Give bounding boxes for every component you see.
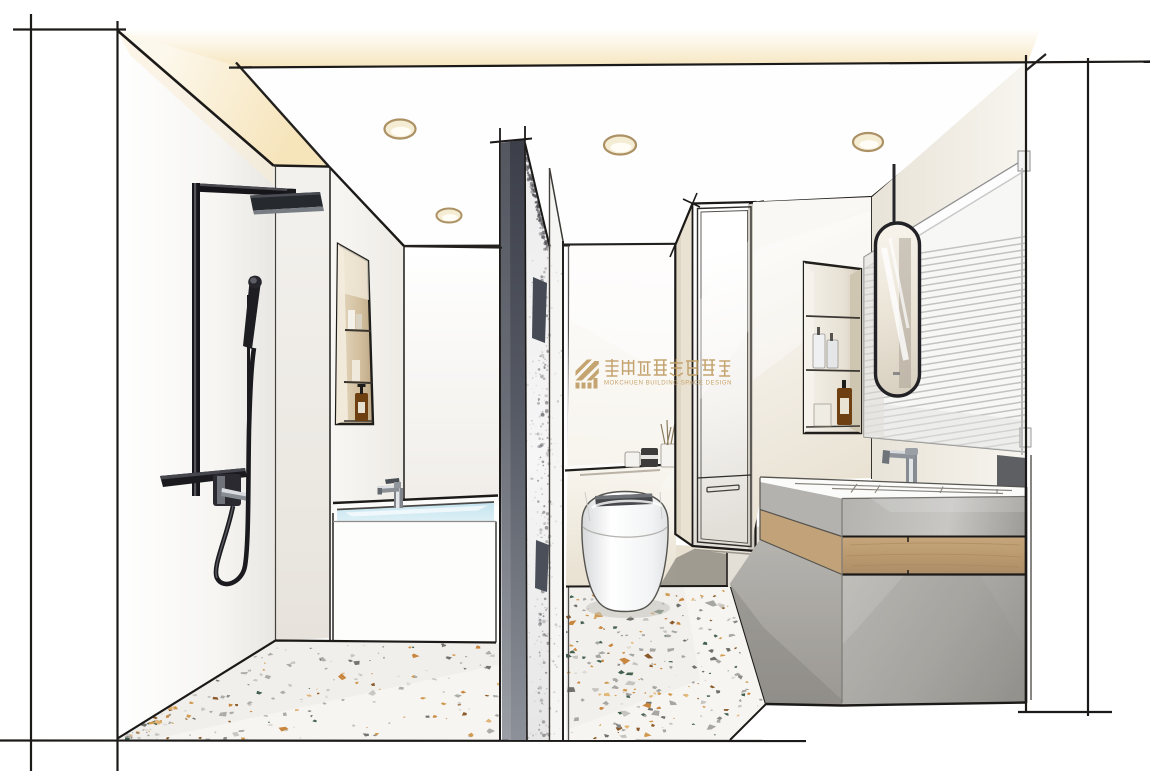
svg-text:MOKCHUEN BUILDING SPACE DESIGN: MOKCHUEN BUILDING SPACE DESIGN	[604, 380, 732, 387]
